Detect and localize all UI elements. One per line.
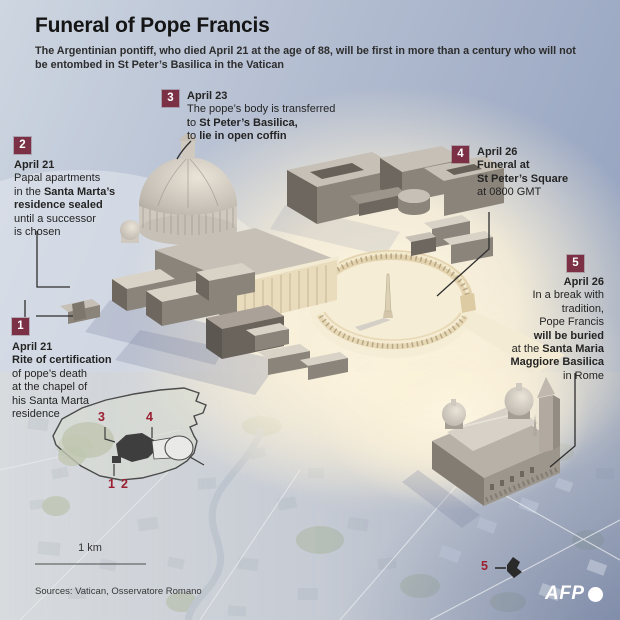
- inset-marker-2: 2: [121, 477, 128, 491]
- infographic: Funeral of Pope Francis The Argentinian …: [0, 0, 620, 620]
- annotation-badge: 5: [567, 255, 584, 272]
- subtitle: The Argentinian pontiff, who died April …: [35, 44, 583, 72]
- annotation-text: April 21Rite of certificationof pope’s d…: [12, 341, 112, 421]
- annotation-text: April 26Funeral atSt Peter’s Squareat 08…: [477, 146, 568, 200]
- annotation-badge: 2: [14, 137, 31, 154]
- annotation-badge: 4: [452, 146, 469, 163]
- square-footprint: [165, 436, 193, 460]
- afp-logo-dot-icon: [588, 587, 603, 602]
- scale-label: 1 km: [58, 542, 122, 554]
- inset-marker-3: 3: [98, 410, 105, 424]
- afp-logo-text: AFP: [545, 583, 585, 605]
- inset-marker-4: 4: [146, 410, 153, 424]
- annotation-badge: 3: [162, 90, 179, 107]
- header: Funeral of Pope Francis The Argentinian …: [35, 14, 595, 72]
- annotation-3: 3 April 23The pope’s body is transferred…: [162, 90, 335, 144]
- inset-marker-1: 1: [108, 477, 115, 491]
- annotation-text: April 23The pope’s body is transferredto…: [187, 90, 335, 144]
- annotation-4: 4 April 26Funeral atSt Peter’s Squareat …: [452, 146, 568, 200]
- annotation-text: April 26In a break withtradition,Pope Fr…: [510, 276, 604, 383]
- annotation-badge: 1: [12, 318, 29, 335]
- annotation-2: 2 April 21Papal apartmentsin the Santa M…: [14, 137, 115, 239]
- page-title: Funeral of Pope Francis: [35, 14, 595, 38]
- annotation-text: April 21Papal apartmentsin the Santa Mar…: [14, 159, 115, 239]
- map-marker-5: 5: [481, 559, 488, 573]
- annotation-5: 5 April 26In a break withtradition,Pope …: [510, 255, 604, 383]
- afp-logo: AFP: [545, 583, 603, 605]
- santa-marta-footprint: [112, 456, 121, 463]
- annotation-1: 1 April 21Rite of certificationof pope’s…: [12, 318, 112, 421]
- sources-note: Sources: Vatican, Osservatore Romano: [35, 586, 202, 597]
